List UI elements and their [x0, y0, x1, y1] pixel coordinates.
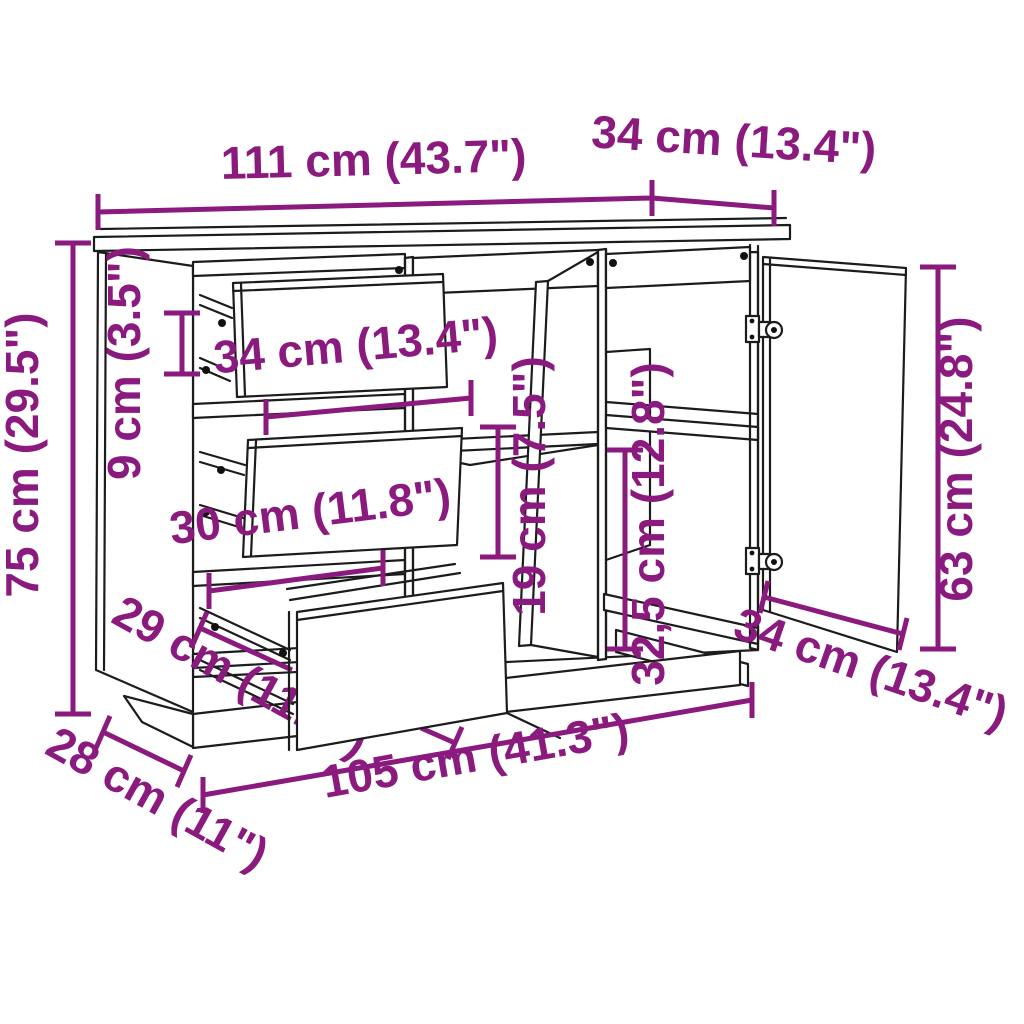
sideboard-dimension-diagram: 29 cm (11.4"): [0, 0, 1024, 1024]
dim-door-height: 63 cm (24.8"): [920, 267, 982, 649]
top-panel: [94, 218, 790, 251]
diagram-canvas: 29 cm (11.4"): [0, 0, 1024, 1024]
dim-top-depth: 34 cm (13.4"): [590, 105, 878, 226]
dim-top-depth-label: 34 cm (13.4"): [590, 105, 878, 174]
dim-height: 75 cm (29.5"): [0, 243, 91, 714]
dim-front-rail-height-label: 9 cm (3.5"): [98, 246, 150, 480]
right-door: [763, 257, 906, 652]
dim-right-shelf-clearance-label: 32,5 cm (12.8"): [622, 362, 674, 686]
dim-height-line: [55, 243, 91, 714]
dim-door-height-label: 63 cm (24.8"): [930, 316, 982, 601]
dim-top-width: 111 cm (43.7"): [98, 129, 652, 230]
dim-middle-shelf-clearance-label: 19 cm (7.5"): [503, 356, 555, 616]
dim-height-label: 75 cm (29.5"): [0, 312, 48, 597]
dim-top-width-label: 111 cm (43.7"): [220, 129, 527, 189]
